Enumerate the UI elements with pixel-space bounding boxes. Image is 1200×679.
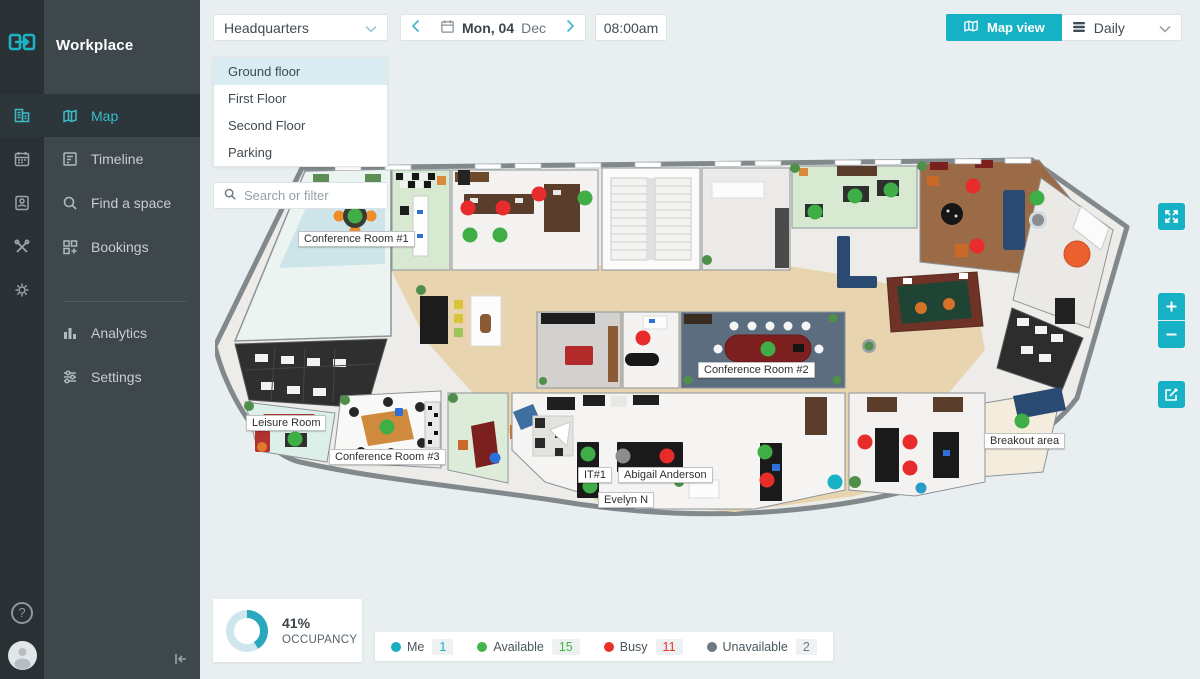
occupancy-percent: 41% — [282, 615, 357, 631]
rail-gear-icon[interactable] — [13, 281, 31, 299]
rail-calendar-icon[interactable] — [13, 150, 31, 168]
frequency-value: Daily — [1094, 20, 1151, 36]
date-day: Mon, 04 — [462, 20, 514, 36]
legend-label: Me — [407, 640, 424, 654]
search-icon — [61, 194, 79, 212]
map-view-button[interactable]: Map view — [946, 14, 1062, 41]
view-toggle-group: Map view Daily — [946, 14, 1182, 41]
search-filter-box — [213, 182, 388, 209]
chevron-down-icon — [365, 20, 377, 36]
floor-label: Ground floor — [228, 64, 300, 79]
search-input[interactable] — [244, 188, 374, 203]
search-icon — [223, 187, 237, 204]
busy-dot-icon — [604, 642, 614, 652]
floor-list: Ground floor First Floor Second Floor Pa… — [213, 57, 388, 167]
status-dot-me[interactable] — [828, 475, 843, 490]
calendar-icon — [440, 19, 455, 37]
floor-item-ground[interactable]: Ground floor — [214, 58, 387, 85]
next-day-button[interactable] — [566, 19, 575, 36]
collapse-sidebar-icon[interactable] — [172, 650, 192, 670]
rail-contact-icon[interactable] — [13, 194, 31, 212]
date-navigator: Mon, 04 Dec — [400, 14, 586, 41]
list-icon — [1072, 20, 1086, 36]
room-label-leisure[interactable]: Leisure Room — [246, 415, 326, 431]
sidebar-item-label: Timeline — [91, 151, 143, 167]
edit-map-button[interactable] — [1158, 381, 1185, 408]
legend-item-me: Me 1 — [391, 639, 453, 655]
legend-item-unavailable: Unavailable 2 — [707, 639, 817, 655]
sidebar-item-label: Map — [91, 108, 118, 124]
legend-label: Available — [493, 640, 544, 654]
floor-item-first[interactable]: First Floor — [214, 85, 387, 112]
zoom-in-button[interactable] — [1158, 293, 1185, 320]
desk-label-evelyn[interactable]: Evelyn N — [598, 492, 654, 508]
room-label-conference-2[interactable]: Conference Room #2 — [698, 362, 815, 378]
time-value: 08:00am — [604, 20, 658, 36]
time-select[interactable]: 08:00am — [595, 14, 667, 41]
desk-label-it1[interactable]: IT#1 — [578, 467, 612, 483]
legend-count: 15 — [552, 639, 580, 655]
legend-count: 11 — [656, 639, 683, 655]
occupancy-caption: OCCUPANCY — [282, 634, 357, 646]
room-label-breakout[interactable]: Breakout area — [984, 433, 1065, 449]
floor-item-parking[interactable]: Parking — [214, 139, 387, 166]
sidebar-item-label: Find a space — [91, 195, 171, 211]
sidebar-item-find-a-space[interactable]: Find a space — [44, 181, 200, 225]
chevron-down-icon — [1159, 20, 1171, 36]
sidebar-item-map[interactable]: Map — [44, 94, 200, 137]
location-value: Headquarters — [224, 20, 309, 36]
legend-item-busy: Busy 11 — [604, 639, 683, 655]
occupancy-card: 41% OCCUPANCY — [213, 599, 362, 662]
date-display[interactable]: Mon, 04 Dec — [440, 19, 546, 37]
bookings-icon — [61, 238, 79, 256]
sidebar-item-bookings[interactable]: Bookings — [44, 225, 200, 269]
frequency-select[interactable]: Daily — [1062, 14, 1182, 41]
unavailable-dot-icon — [707, 642, 717, 652]
sidebar-item-label: Bookings — [91, 239, 149, 255]
sidebar-item-settings[interactable]: Settings — [44, 355, 200, 399]
me-dot-icon — [391, 642, 401, 652]
zoom-out-button[interactable] — [1158, 321, 1185, 348]
app-title: Workplace — [56, 37, 133, 54]
sidebar-divider — [64, 301, 186, 302]
floor-item-second[interactable]: Second Floor — [214, 112, 387, 139]
rail-tools-icon[interactable] — [13, 238, 31, 256]
analytics-icon — [61, 324, 79, 342]
prev-day-button[interactable] — [411, 19, 420, 36]
sidebar-item-analytics[interactable]: Analytics — [44, 311, 200, 355]
available-dot-icon — [477, 642, 487, 652]
legend-count: 1 — [432, 639, 453, 655]
occupancy-donut — [224, 608, 270, 654]
user-avatar[interactable] — [8, 641, 37, 670]
floor-label: Second Floor — [228, 118, 305, 133]
sliders-icon — [61, 368, 79, 386]
location-select[interactable]: Headquarters — [213, 14, 388, 41]
floor-label: Parking — [228, 145, 272, 160]
desk-label-abigail[interactable]: Abigail Anderson — [618, 467, 713, 483]
legend-count: 2 — [796, 639, 817, 655]
help-button[interactable]: ? — [11, 602, 33, 624]
timeline-icon — [61, 150, 79, 168]
fullscreen-button[interactable] — [1158, 203, 1185, 230]
rail-buildings-icon[interactable] — [13, 106, 31, 124]
map-view-label: Map view — [987, 20, 1045, 35]
room-label-conference-3[interactable]: Conference Room #3 — [329, 449, 446, 465]
sidebar-item-label: Settings — [91, 369, 142, 385]
legend-item-available: Available 15 — [477, 639, 579, 655]
sidebar-item-timeline[interactable]: Timeline — [44, 137, 200, 181]
map-icon — [61, 107, 79, 125]
floor-label: First Floor — [228, 91, 287, 106]
legend-label: Unavailable — [723, 640, 788, 654]
app-logo-icon — [8, 31, 36, 53]
zoom-controls — [1158, 293, 1185, 348]
date-month: Dec — [521, 20, 546, 36]
legend-label: Busy — [620, 640, 648, 654]
map-icon — [963, 19, 979, 36]
sidebar-item-label: Analytics — [91, 325, 147, 341]
status-legend: Me 1 Available 15 Busy 11 Unavailable 2 — [375, 632, 833, 661]
room-label-conference-1[interactable]: Conference Room #1 — [298, 231, 415, 247]
